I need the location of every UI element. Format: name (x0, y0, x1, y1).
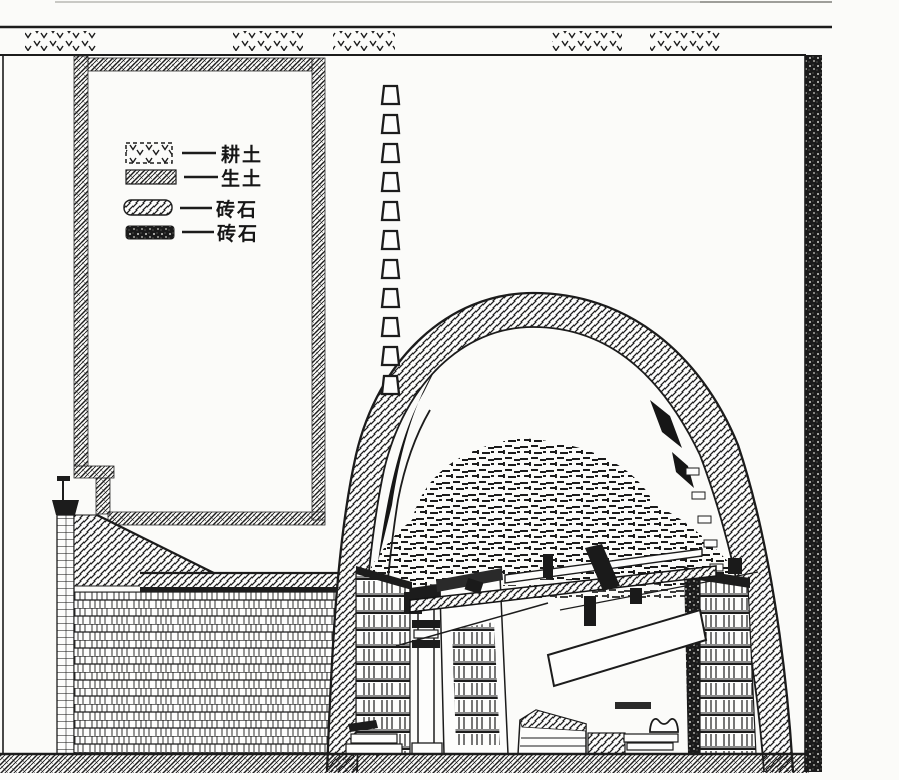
legend-label-virgin-soil: 生土 (221, 167, 263, 190)
right-wall-rubble-strip (684, 566, 700, 754)
foothold-niche (382, 318, 399, 336)
pit-right-wall (312, 58, 325, 520)
legend-swatch-rubble (126, 226, 174, 239)
foothold-niche (382, 144, 399, 162)
legend-swatch-brick (124, 200, 172, 215)
plow-soil-marks (233, 31, 303, 51)
beam-fragment (584, 596, 596, 626)
beam-fragment (630, 588, 642, 604)
foothold-niche (382, 115, 399, 133)
floor-slab (351, 734, 397, 743)
floor-slab (346, 744, 402, 754)
ground-line (0, 754, 810, 773)
floor-slab (627, 743, 673, 750)
right-rubble-wall (805, 55, 822, 772)
right-brick-pier (700, 578, 756, 754)
right-boundary-band (805, 55, 822, 772)
pit-left-step (74, 466, 114, 478)
pit-floor (108, 512, 325, 525)
foothold-niche (382, 260, 399, 278)
door-column-capital-band (412, 640, 440, 648)
beam-fragment (543, 554, 553, 578)
post-shaft (57, 515, 74, 754)
legend-label-rubble: 砖石 (217, 222, 259, 245)
pit-top-edge (88, 58, 312, 71)
plow-soil-marks (650, 31, 720, 51)
floating-bar-object (615, 702, 651, 709)
tomb-cross-section-drawing: 耕土 生土 砖石 砖石 (0, 0, 899, 780)
foothold-niche (382, 347, 399, 365)
pit-left-wall (74, 56, 88, 466)
ground-hatch-band (0, 754, 810, 773)
legend-item-virgin-soil: 生土 (126, 167, 263, 190)
legend: 耕土 生土 砖石 砖石 (124, 143, 263, 245)
right-chamber-wall (684, 566, 756, 754)
leaning-wall-brick-patch (452, 622, 500, 745)
pit-left-step-wall (96, 478, 110, 514)
foothold-niche (382, 289, 399, 307)
post-finial (57, 476, 70, 481)
brick-masonry-mass (74, 592, 366, 754)
topsoil-layer (0, 27, 832, 55)
brick-platform (74, 573, 370, 754)
ingot-shaped-object (650, 719, 678, 732)
legend-item-topsoil: 耕土 (126, 143, 263, 166)
legend-swatch-topsoil (126, 143, 172, 163)
door-column-capital-band (412, 620, 440, 628)
foothold-niche (382, 376, 399, 394)
sealing-layer-band (140, 573, 368, 587)
plow-soil-marks (25, 31, 97, 51)
fallen-plank (548, 610, 706, 686)
floor-slab (624, 734, 678, 742)
foothold-niche (382, 86, 399, 104)
burial-pit-outline (74, 56, 325, 525)
beam-fragment (728, 558, 742, 574)
sealing-layer-dark-course (140, 587, 370, 592)
door-column-base (412, 743, 442, 754)
plow-soil-marks (552, 31, 622, 51)
legend-item-brick: 砖石 (124, 198, 258, 221)
legend-label-topsoil: 耕土 (221, 143, 263, 166)
foothold-niche (382, 173, 399, 191)
post-cap (52, 500, 79, 515)
scanned-figure: 耕土 生土 砖石 砖石 (0, 0, 899, 780)
hatched-floor-block (588, 733, 625, 754)
foothold-niche (382, 231, 399, 249)
legend-item-rubble: 砖石 (126, 222, 259, 245)
legend-label-brick: 砖石 (216, 198, 258, 221)
plow-soil-marks (333, 31, 395, 51)
foothold-niche (382, 202, 399, 220)
foothold-niches (382, 86, 399, 394)
legend-swatch-virgin-soil (126, 170, 176, 184)
